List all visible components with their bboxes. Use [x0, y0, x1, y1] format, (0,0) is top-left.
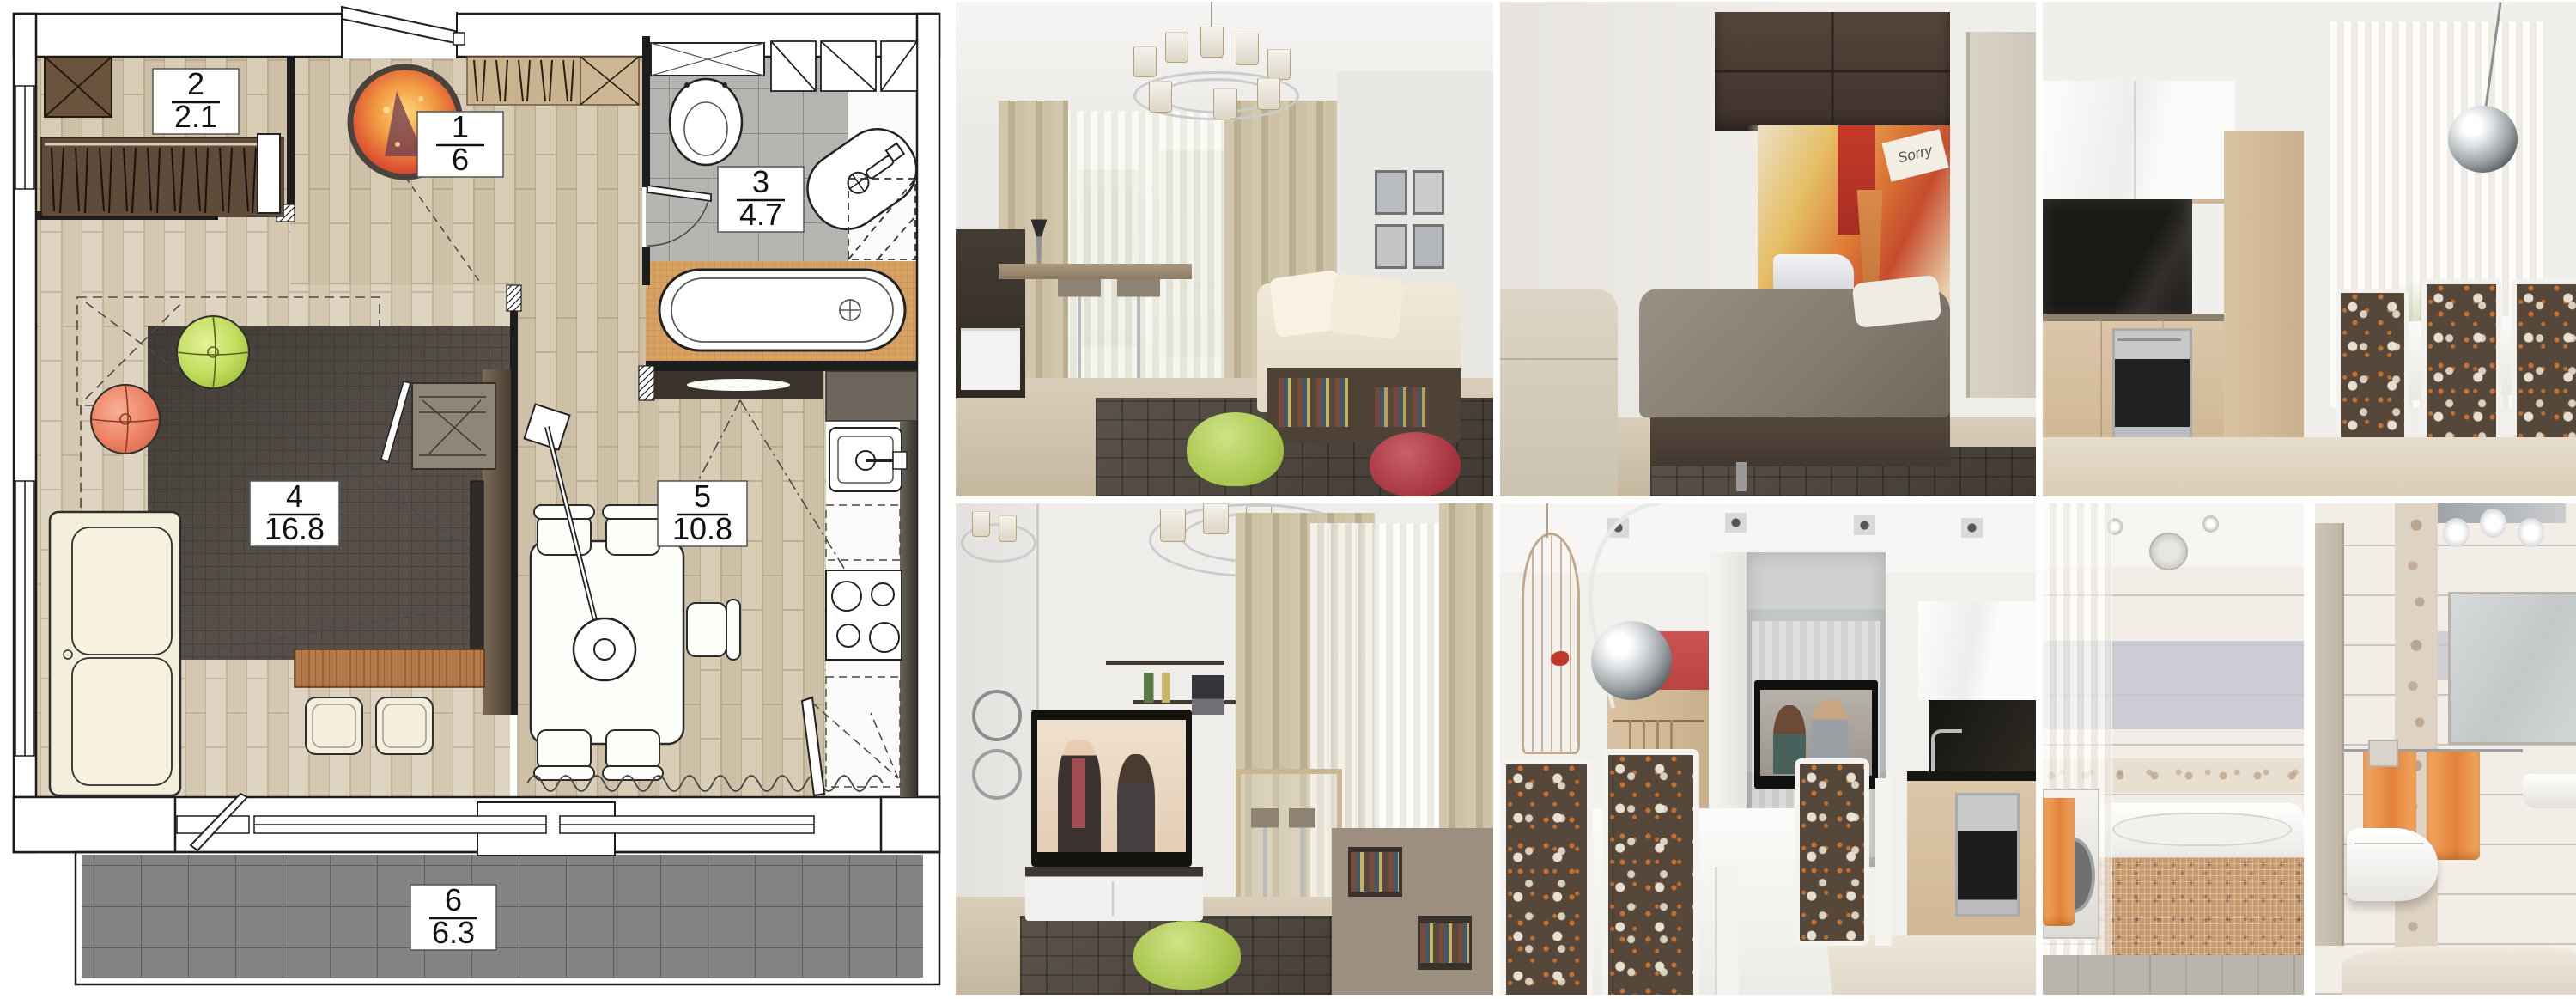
bar-counter: [999, 264, 1192, 278]
svg-text:4: 4: [286, 478, 303, 514]
upper-cabinets: [2043, 81, 2235, 204]
light-bulb: [2518, 518, 2544, 547]
spotlight: [1854, 515, 1875, 535]
chandelier-shade: [1149, 81, 1172, 113]
tv-unit-drawers: [961, 328, 1020, 390]
wall-shelf: [1106, 661, 1224, 665]
kitchen-uppers: [1918, 601, 2036, 699]
chandelier-shade: [1165, 32, 1188, 64]
coat-rack: [467, 57, 639, 105]
chandelier-shade: [1257, 78, 1280, 110]
wardrobe-rail: [41, 137, 283, 216]
birdcage-chain: [1546, 503, 1548, 538]
sofa: [50, 512, 180, 795]
photo-living-room-tv: [956, 503, 1493, 995]
tv-person-woman: [1117, 754, 1155, 852]
tv-backsplash: [2043, 199, 2192, 318]
dining-chair: [1500, 758, 1593, 995]
sofa-cushion: [1329, 273, 1405, 339]
svg-text:3: 3: [752, 164, 769, 199]
door-edge: [2315, 523, 2344, 946]
chandelier-shade: [1133, 46, 1157, 78]
tv-stand: [1025, 867, 1203, 921]
ventilation-shaft: [45, 57, 112, 117]
ceiling-spotlight: [2202, 515, 2219, 532]
pane-divider: [2304, 503, 2314, 995]
pouf-green: [1133, 921, 1241, 990]
birdcage-decal: [1522, 533, 1580, 754]
floor: [2043, 437, 2576, 496]
bed-pillow: [1851, 274, 1941, 327]
tall-cabinet: [2224, 131, 2304, 437]
light-bulb: [2443, 518, 2470, 547]
kitchen-counter: [1907, 771, 2036, 781]
sofa-corner: [1500, 289, 1618, 496]
room-label-hall: 1 6: [417, 109, 503, 177]
dining-chair: [1795, 758, 1869, 946]
bar-stool: [1058, 279, 1101, 378]
chair-frame: [1875, 778, 1892, 945]
floor-plan: 1 6 2 2.1 3 4.7 4 16.8 5 10.8: [0, 0, 949, 999]
closet-door-leaf: [258, 134, 280, 213]
toilet-seat-line: [2354, 843, 2424, 844]
svg-text:5: 5: [694, 478, 711, 514]
svg-text:6: 6: [445, 882, 462, 917]
entry-door: [342, 7, 465, 58]
upper-cabinet-seam: [2134, 81, 2136, 199]
table-leg: [1715, 867, 1739, 995]
mirror: [2448, 592, 2576, 745]
svg-text:2: 2: [187, 66, 204, 101]
wall-frames: [1413, 170, 1444, 215]
sink: [2523, 774, 2576, 808]
toilet: [2347, 828, 2438, 902]
decal-bird: [1551, 651, 1569, 666]
chandelier-shade: [1236, 34, 1259, 65]
arc-lamp-sphere: [1591, 621, 1672, 700]
chandelier-shade: [1200, 27, 1224, 58]
dining-chair: [1602, 749, 1700, 995]
wall-frames: [1413, 224, 1444, 269]
spotlight: [1961, 518, 1983, 538]
bookshelf-books: [1351, 852, 1399, 892]
kitchen-faucet: [1931, 729, 1961, 777]
wall-frames: [1375, 224, 1406, 269]
svg-text:6: 6: [452, 142, 469, 177]
photo-kitchen: [2043, 2, 2576, 496]
room-label-balcony: 6 6.3: [410, 882, 496, 950]
flush-plate: [2368, 740, 2398, 768]
bath-shelves: [771, 41, 917, 91]
room-label-living: 4 16.8: [250, 478, 339, 546]
shower-head: [2149, 533, 2187, 570]
round-wall-decor: [972, 690, 1022, 740]
photo-bathroom: [2043, 503, 2576, 995]
room-label-closet: 2 2.1: [153, 66, 239, 134]
pouf-red: [91, 385, 160, 454]
svg-text:6.3: 6.3: [432, 915, 475, 950]
door: [1966, 32, 2036, 398]
bookshelf-books: [1420, 923, 1468, 963]
photo-bedroom: Sorry: [1500, 2, 2036, 496]
photo-dining-area: [1500, 503, 2036, 995]
tv-stand-drawer-line: [1112, 881, 1114, 916]
bar-stool: [1251, 808, 1278, 897]
wood-bench: [295, 649, 484, 687]
svg-text:16.8: 16.8: [264, 511, 325, 546]
sofa-corner-seam: [1500, 358, 1618, 360]
svg-text:10.8: 10.8: [672, 511, 732, 546]
shelf-books: [1279, 378, 1348, 428]
svg-text:4.7: 4.7: [739, 197, 782, 232]
tv-person-scarf: [1072, 758, 1085, 827]
oven: [2112, 328, 2192, 442]
room-label-kitchen: 5 10.8: [658, 478, 747, 546]
light-bulb: [2480, 509, 2506, 538]
cabinet-seams: [1715, 12, 1951, 131]
bed-leg: [1736, 462, 1747, 492]
shelf-books: [1375, 387, 1429, 427]
round-wall-decor: [972, 749, 1022, 800]
bath-right-floor: [2342, 946, 2576, 995]
wall-frames: [1375, 170, 1406, 215]
orange-towel: [2427, 752, 2480, 860]
pouf-green: [177, 316, 249, 388]
chandelier-shade: [1267, 49, 1291, 81]
mirror-chandelier-shade: [999, 515, 1017, 542]
bar-stool: [1117, 279, 1160, 378]
mirror-chandelier-shade: [972, 511, 990, 538]
pouf-green: [1187, 412, 1284, 486]
arc-lamp-sphere: [2448, 106, 2518, 173]
towel-on-washer: [2043, 798, 2075, 926]
chandelier-shade: [1213, 88, 1236, 120]
svg-text:1: 1: [452, 109, 469, 144]
kitchen-oven: [1955, 793, 2020, 916]
photo-living-room-window: [956, 2, 1493, 496]
room-label-bathroom: 3 4.7: [718, 164, 804, 232]
shelf-bottles: [1144, 673, 1176, 702]
kitchen-tv: [654, 371, 823, 399]
pouf-red: [1370, 432, 1461, 496]
bath-floor: [2043, 955, 2304, 995]
bathtub: [659, 270, 905, 350]
bar-stool: [1289, 808, 1315, 897]
chandelier-shade: [1160, 509, 1186, 542]
svg-text:2.1: 2.1: [174, 99, 217, 134]
spotlight: [1725, 513, 1747, 533]
countertop: [2043, 314, 2224, 321]
shelf-lamp: [1192, 675, 1224, 715]
chandelier-shade: [1203, 503, 1229, 534]
bathtub-inner: [2112, 813, 2292, 845]
oven-handle: [2117, 338, 2182, 341]
